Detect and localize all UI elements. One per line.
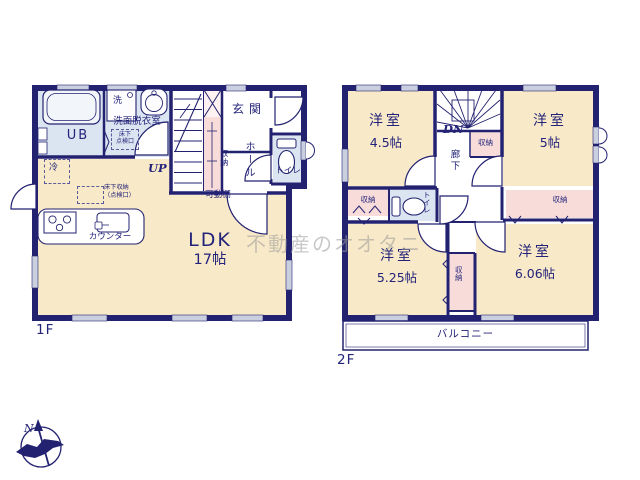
label-room606-size: 6.06帖 — [486, 267, 584, 281]
label-room606-name: 洋室 — [486, 245, 584, 260]
label-ldk-size: 17帖 — [170, 253, 250, 269]
label-entrance: 玄関 — [226, 103, 272, 116]
floor2-toilet-fixture — [392, 197, 425, 216]
floor1-stairs — [174, 94, 202, 183]
label-storage-1f: 収納 — [219, 149, 228, 167]
label-toilet-1f: トイレ — [273, 167, 303, 176]
underfloor-storage-box — [77, 186, 104, 204]
label-unit-bath: UB — [56, 129, 100, 143]
label-toilet-2f: トイレ — [422, 191, 430, 214]
label-room525-size: 5.25帖 — [348, 271, 446, 285]
label-hall: ホール — [243, 141, 254, 180]
label-storage-left: 収納 — [348, 196, 388, 204]
label-room5-name: 洋室 — [522, 114, 578, 129]
label-washroom: 洗面脱衣室 — [105, 117, 169, 127]
label-washer: 洗 — [113, 97, 122, 107]
compass-north-label: N — [23, 422, 34, 435]
label-floor2: 2F — [337, 353, 355, 368]
label-room5-size: 5帖 — [522, 136, 578, 150]
label-balcony: バルコニー — [403, 329, 528, 341]
label-stairs-up: UP — [148, 162, 167, 175]
label-storage-center: 収納 — [454, 266, 462, 281]
label-movable-shelf: 可動棚 — [200, 191, 236, 200]
label-room45-size: 4.5帖 — [358, 136, 414, 150]
label-floor1: 1F — [36, 323, 54, 338]
watermark: 不動産のオオタニ — [246, 228, 422, 257]
compass-north-icon: N — [16, 419, 64, 467]
underfloor-hatch-box: 床下 点検口 — [111, 129, 139, 150]
label-fridge: 冷 — [49, 164, 58, 174]
label-storage-right: 収納 — [536, 196, 584, 204]
label-corridor: 廊下 — [448, 149, 458, 172]
label-underfloor-storage-1: 床下収納 — [104, 185, 129, 192]
label-stairs-down: DN — [443, 123, 463, 136]
label-storage-by-stairs: 収納 — [471, 139, 500, 147]
floorplan-canvas: N UB 洗 洗面脱衣室 床下 点検口 UP 可動棚 玄関 収納 ホール トイレ… — [0, 0, 640, 480]
stove-icon — [44, 212, 76, 233]
label-ldk: LDK — [170, 230, 250, 251]
label-counter: カウンター — [84, 233, 136, 242]
toilet-2f-icon — [392, 197, 400, 216]
toilet-1f-icon — [277, 139, 296, 148]
label-underfloor-hatch-2: 点検口 — [112, 139, 138, 146]
label-underfloor-storage-2: （点検口） — [104, 193, 135, 200]
label-room45-name: 洋室 — [358, 114, 414, 129]
fridge-box: 冷 — [44, 159, 70, 184]
